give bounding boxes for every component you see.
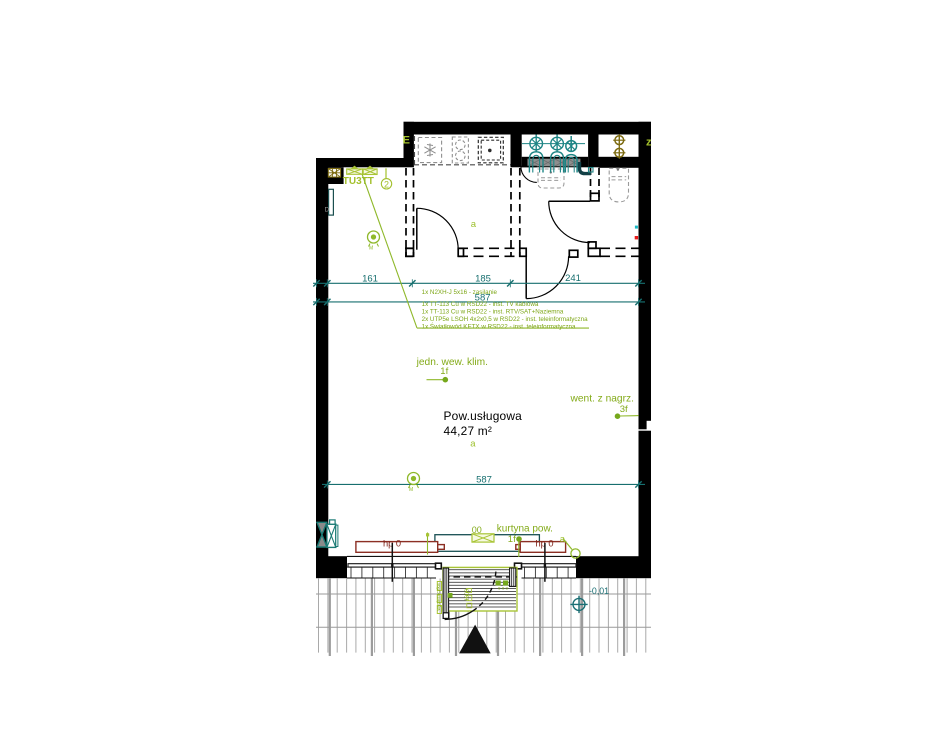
svg-text:1x TT-113 Cu w RSD22 - inst. R: 1x TT-113 Cu w RSD22 - inst. RTV/SAT+Naz… [422, 308, 564, 315]
svg-text:TU3TT: TU3TT [343, 176, 374, 187]
svg-text:a: a [560, 534, 566, 545]
svg-text:1f: 1f [508, 534, 516, 545]
svg-text:44,27 m²: 44,27 m² [444, 424, 493, 438]
svg-text:-0,01: -0,01 [589, 586, 609, 596]
svg-text:2x UTP5e LSOH 4x2x0,5 w RSD22: 2x UTP5e LSOH 4x2x0,5 w RSD22 - inst. te… [422, 316, 589, 323]
svg-text:241: 241 [565, 273, 581, 284]
svg-text:M: M [369, 246, 373, 252]
svg-text:o o o: o o o [498, 586, 509, 591]
svg-text:jedn. wew. klim.: jedn. wew. klim. [416, 357, 488, 368]
svg-text:1000: 1000 [465, 589, 471, 601]
svg-text:587: 587 [476, 475, 492, 486]
svg-text:a: a [471, 219, 477, 230]
svg-text:3f: 3f [620, 404, 628, 415]
svg-text:M: M [409, 487, 413, 493]
svg-text:1f: 1f [440, 366, 448, 377]
svg-text:a: a [470, 438, 476, 449]
svg-text:587: 587 [475, 293, 491, 304]
svg-text:161: 161 [362, 274, 378, 285]
svg-text:2: 2 [384, 179, 389, 189]
svg-text:kurtyna pow.: kurtyna pow. [497, 523, 553, 534]
svg-text:185: 185 [475, 274, 491, 285]
svg-text:D: D [325, 207, 330, 214]
svg-text:z: z [646, 136, 652, 148]
svg-text:went. z nagrz.: went. z nagrz. [570, 394, 634, 405]
svg-text:E: E [403, 134, 410, 146]
svg-text:1x Światłowód KETX w RSD22 - i: 1x Światłowód KETX w RSD22 - inst. telei… [422, 322, 576, 330]
svg-text:wycieraczka: wycieraczka [436, 583, 442, 610]
svg-text:Pow.usługowa: Pow.usługowa [444, 409, 523, 423]
